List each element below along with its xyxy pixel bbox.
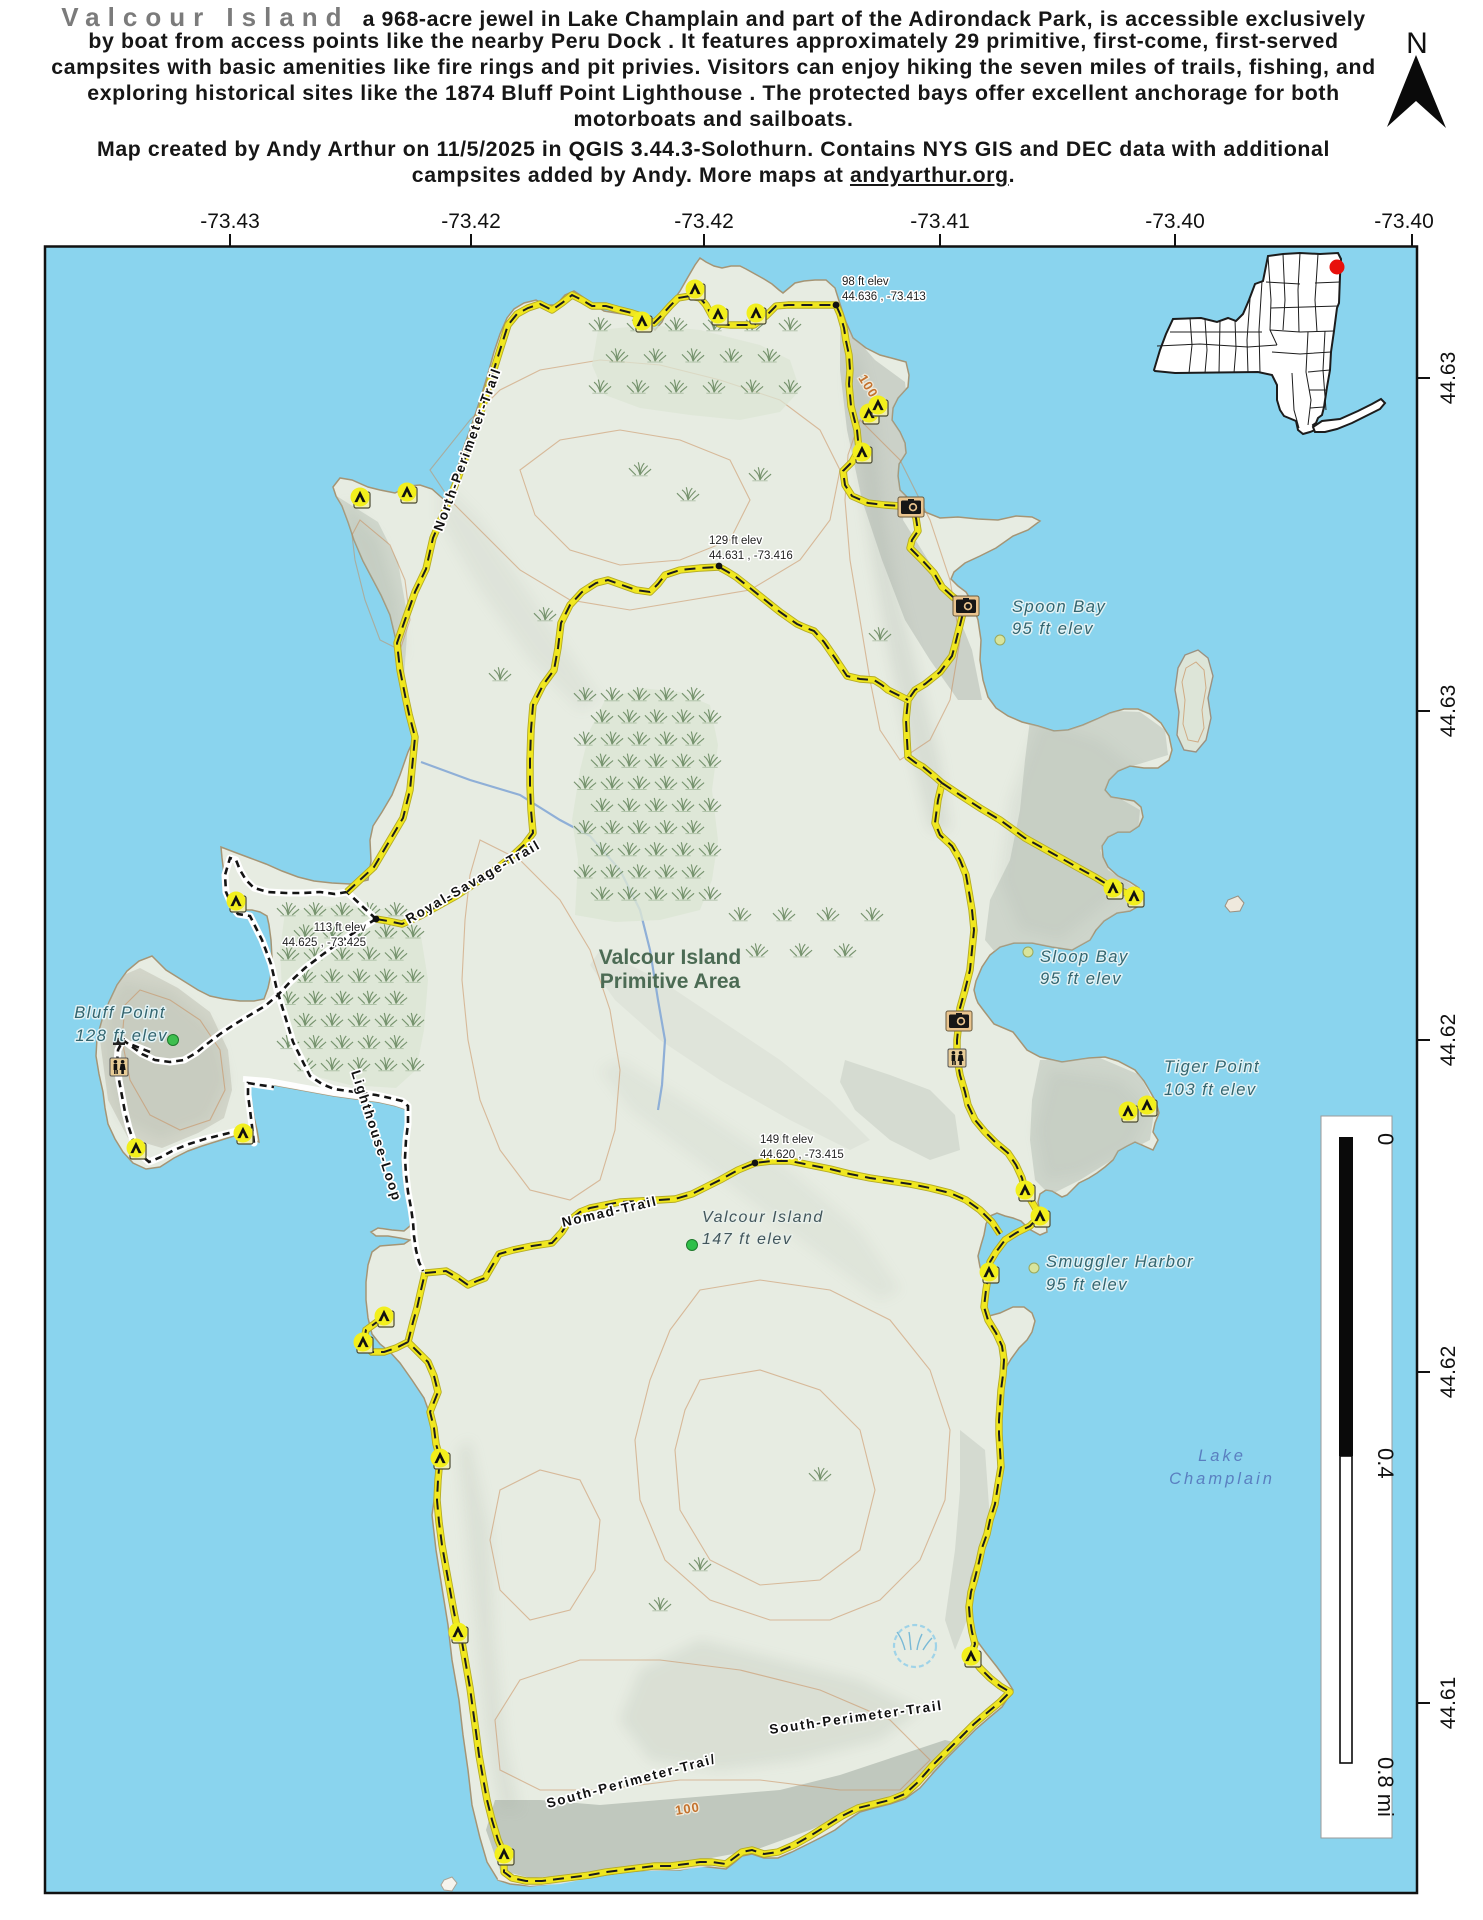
svg-text:Valcour Island: Valcour Island (702, 1209, 824, 1226)
svg-text:129 ft elev: 129 ft elev (709, 535, 762, 547)
svg-text:147 ft elev: 147 ft elev (702, 1231, 792, 1248)
svg-text:Primitive Area: Primitive Area (600, 970, 741, 993)
svg-text:44.631 , -73.416: 44.631 , -73.416 (709, 550, 793, 562)
svg-text:-73.40: -73.40 (1374, 210, 1434, 233)
svg-text:-73.42: -73.42 (674, 210, 734, 233)
svg-text:44.625 , -73.425: 44.625 , -73.425 (282, 937, 366, 949)
svg-text:95 ft elev: 95 ft elev (1046, 1276, 1128, 1294)
svg-text:128 ft elev: 128 ft elev (75, 1027, 168, 1045)
svg-text:95 ft elev: 95 ft elev (1040, 970, 1122, 988)
svg-text:Lake: Lake (1198, 1447, 1246, 1465)
svg-text:44.620 , -73.415: 44.620 , -73.415 (760, 1149, 844, 1161)
svg-text:95 ft elev: 95 ft elev (1012, 620, 1094, 638)
svg-text:-73.41: -73.41 (910, 210, 970, 233)
svg-text:98 ft elev: 98 ft elev (842, 276, 889, 288)
svg-text:0: 0 (1373, 1133, 1398, 1145)
svg-text:44.61: 44.61 (1437, 1677, 1460, 1730)
svg-text:-73.40: -73.40 (1145, 210, 1205, 233)
svg-text:0.4: 0.4 (1373, 1448, 1398, 1479)
svg-text:0.8 mi: 0.8 mi (1373, 1757, 1398, 1817)
svg-text:N: N (1406, 27, 1428, 60)
svg-text:Smuggler Harbor: Smuggler Harbor (1046, 1253, 1194, 1271)
svg-text:44.636 , -73.413: 44.636 , -73.413 (842, 291, 926, 303)
svg-text:44.62: 44.62 (1437, 1346, 1460, 1399)
svg-text:Bluff Point: Bluff Point (74, 1004, 166, 1022)
svg-text:Spoon Bay: Spoon Bay (1012, 598, 1106, 616)
svg-text:-73.42: -73.42 (441, 210, 501, 233)
svg-text:Champlain: Champlain (1169, 1470, 1275, 1488)
svg-text:103 ft elev: 103 ft elev (1164, 1081, 1257, 1099)
svg-text:44.63: 44.63 (1437, 685, 1460, 738)
svg-text:44.62: 44.62 (1437, 1014, 1460, 1067)
svg-text:44.63: 44.63 (1437, 352, 1460, 405)
svg-text:Tiger Point: Tiger Point (1164, 1058, 1260, 1076)
svg-text:113 ft elev: 113 ft elev (314, 922, 366, 934)
svg-text:149 ft elev: 149 ft elev (760, 1134, 813, 1146)
svg-text:-73.43: -73.43 (200, 210, 260, 233)
svg-text:Valcour Island: Valcour Island (599, 946, 741, 969)
svg-text:Sloop Bay: Sloop Bay (1040, 948, 1129, 966)
